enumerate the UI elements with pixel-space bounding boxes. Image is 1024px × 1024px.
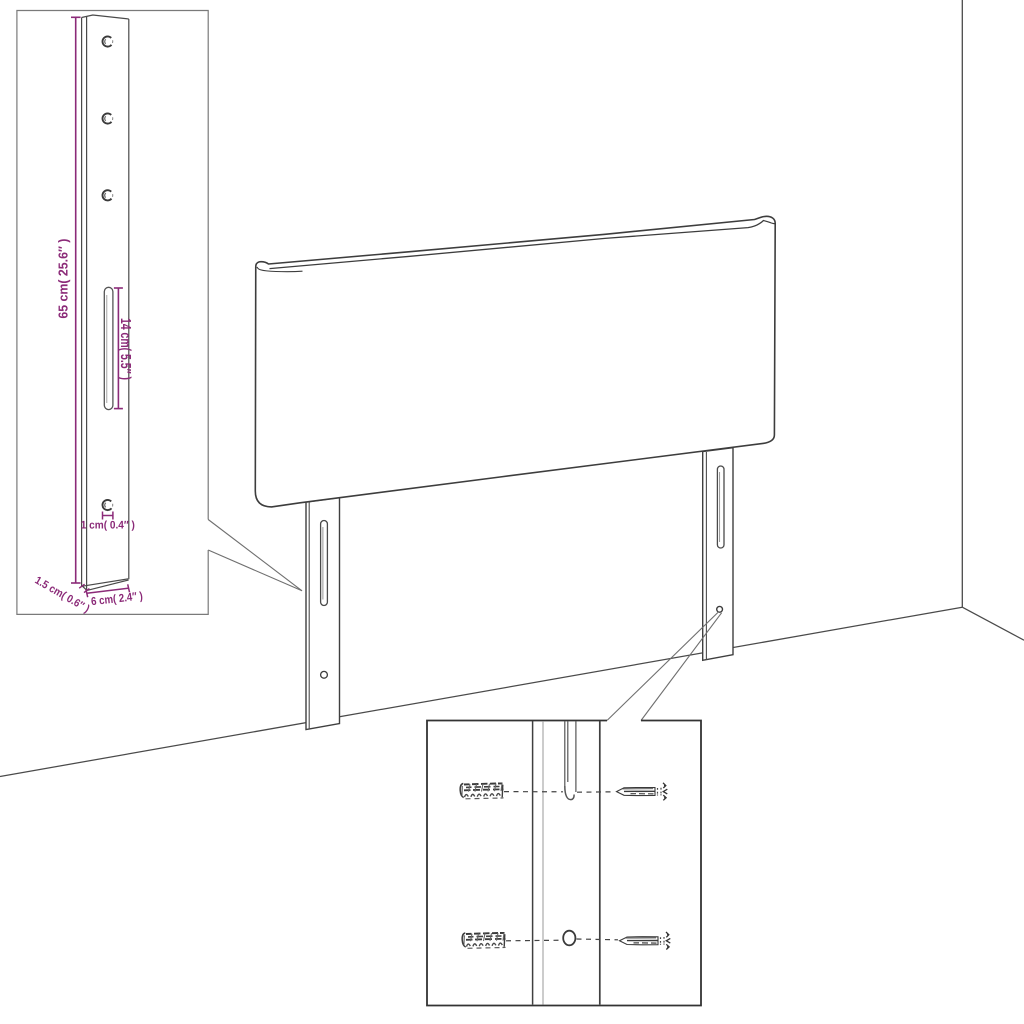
svg-text:65 cm( 25.6″ ): 65 cm( 25.6″ )	[55, 239, 70, 319]
svg-text:14 cm( 5.5″ ): 14 cm( 5.5″ )	[117, 318, 133, 380]
svg-text:1 cm( 0.4″ ): 1 cm( 0.4″ )	[81, 520, 135, 532]
